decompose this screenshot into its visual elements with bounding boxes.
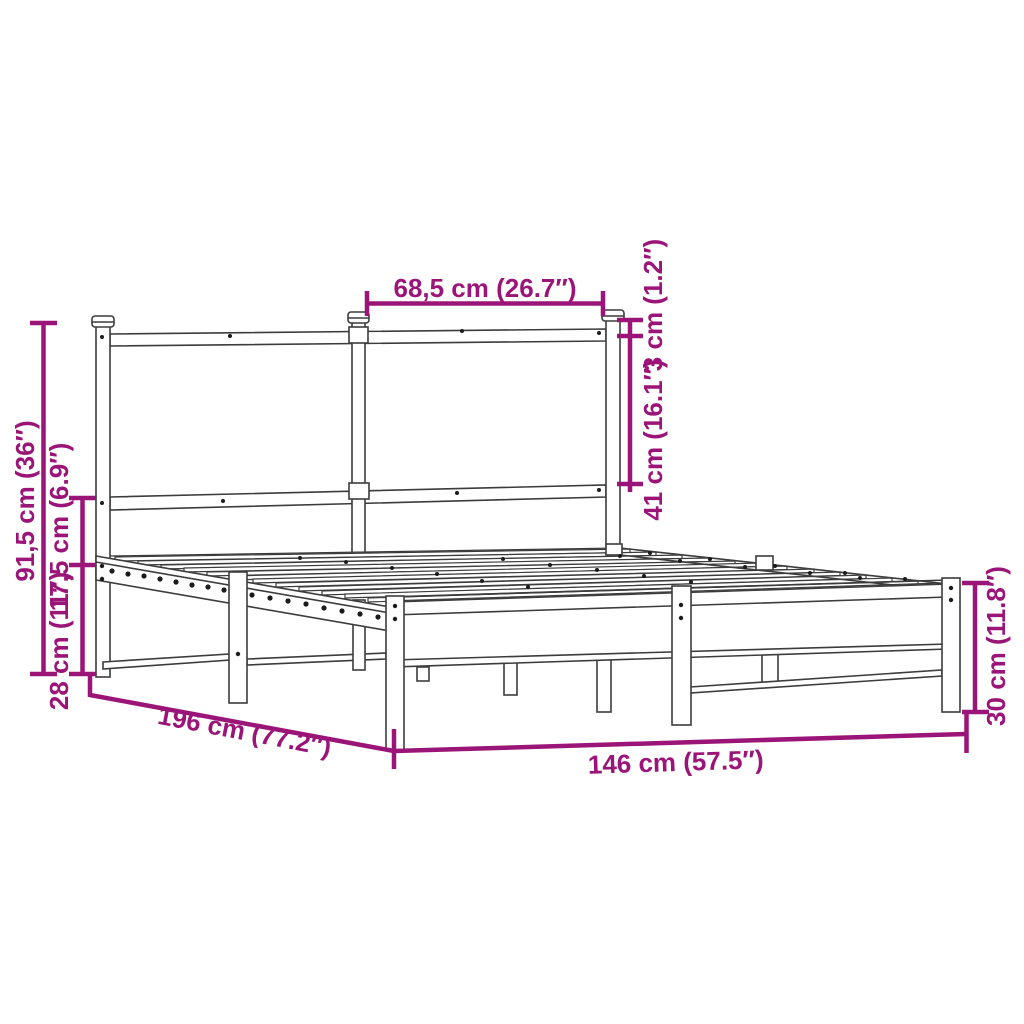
dimension-label-total-height: 91,5 cm (36″) [10, 420, 40, 581]
dimension-label-bed-width: 146 cm (57.5″) [587, 744, 764, 780]
bed-frame [92, 310, 960, 750]
dimension-label-panel-height: 41 cm (16.1″) [638, 359, 668, 520]
headboard-middle-post [348, 312, 369, 556]
dimension-lines [30, 291, 989, 769]
dimension-label-panel-width: 68,5 cm (26.7″) [393, 273, 576, 303]
dimension-label-side-height: 30 cm (11.8″) [981, 566, 1011, 726]
dimension-label-bed-length: 196 cm (77.2″) [156, 700, 334, 762]
dimension-label-clearance: 28 cm (11″) [44, 572, 74, 710]
stretcher-bar-right [690, 670, 942, 693]
dimension-label-finial-height: 3 cm (1.2″) [638, 239, 668, 371]
bed-frame-drawing: 91,5 cm (36″) 17,5 cm (6.9″) 28 cm (11″)… [0, 0, 1024, 1024]
product-dimension-diagram: 91,5 cm (36″) 17,5 cm (6.9″) 28 cm (11″)… [0, 0, 1024, 1024]
center-left-leg [229, 572, 247, 703]
front-rail [392, 580, 948, 681]
